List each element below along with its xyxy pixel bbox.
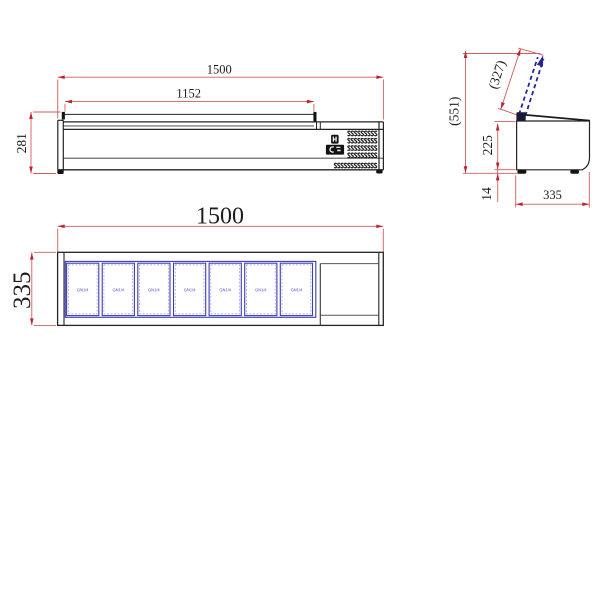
svg-text:14: 14 xyxy=(479,187,494,201)
svg-text:1500: 1500 xyxy=(207,63,232,77)
svg-text:1152: 1152 xyxy=(176,86,201,100)
svg-text:335: 335 xyxy=(543,188,562,202)
svg-text:281: 281 xyxy=(14,133,29,153)
svg-text:335: 335 xyxy=(9,272,36,310)
svg-text:1500: 1500 xyxy=(196,204,244,230)
svg-text:(551): (551) xyxy=(447,97,462,126)
svg-text:225: 225 xyxy=(480,135,495,156)
